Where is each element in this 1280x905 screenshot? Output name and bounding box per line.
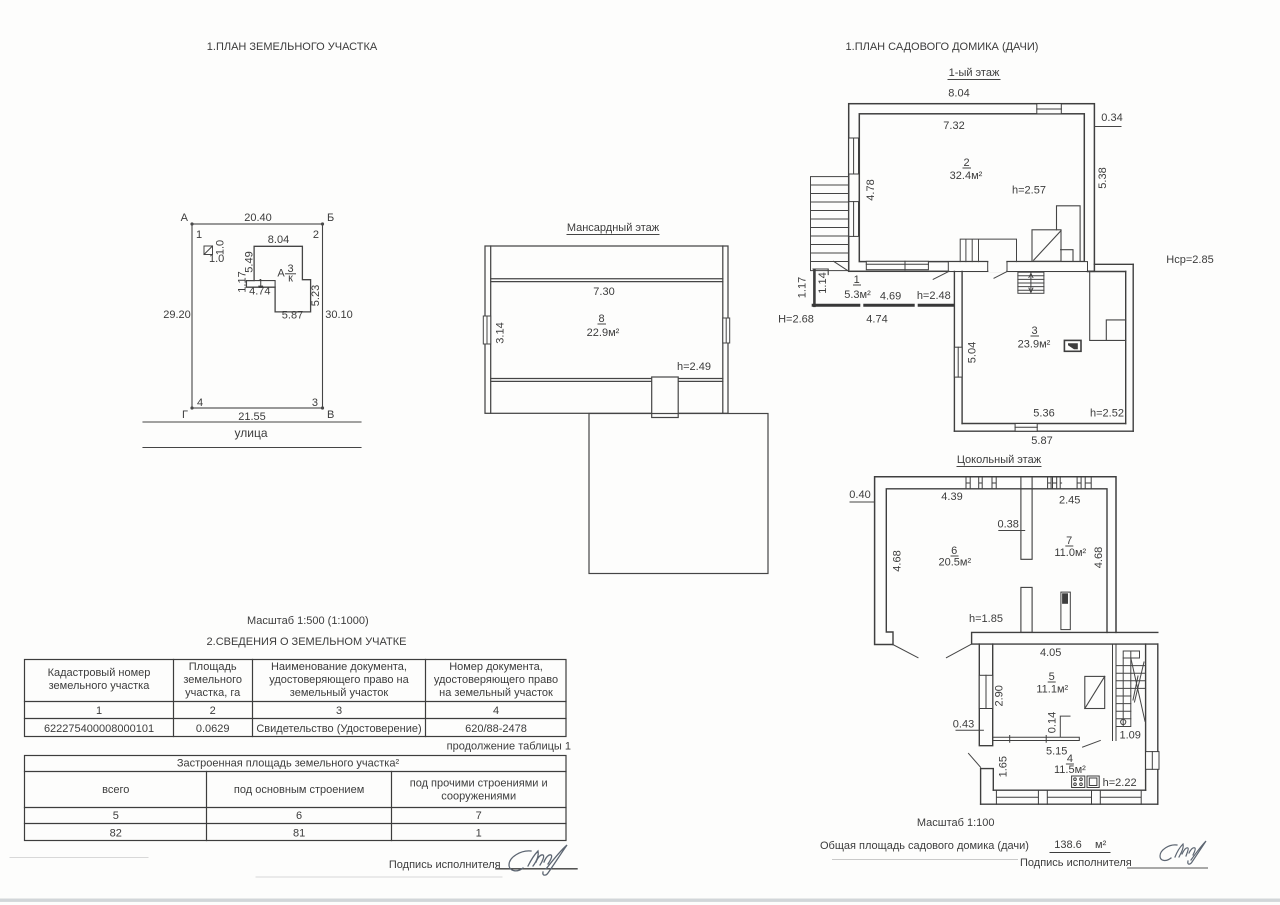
svg-text:81: 81 [293,828,305,840]
svg-text:8: 8 [598,313,604,325]
svg-text:2: 2 [313,229,319,241]
svg-text:Масштаб 1:100: Масштаб 1:100 [917,817,995,829]
svg-text:5: 5 [1049,671,1055,683]
svg-text:h=1.85: h=1.85 [969,613,1003,625]
svg-text:7.30: 7.30 [593,286,614,298]
svg-text:3: 3 [1031,325,1037,337]
svg-text:32.4м²: 32.4м² [950,170,983,182]
svg-text:Подпись исполнителя: Подпись исполнителя [1020,857,1132,869]
svg-text:земельного участка: земельного участка [49,680,151,692]
svg-text:Масштаб 1:500 (1:1000): Масштаб 1:500 (1:1000) [247,615,369,627]
svg-text:4: 4 [197,397,203,409]
svg-text:1: 1 [258,278,264,290]
svg-text:11.1м²: 11.1м² [1036,684,1068,696]
svg-text:11.0м²: 11.0м² [1054,547,1086,559]
svg-text:4.74: 4.74 [866,314,887,326]
svg-text:5.36: 5.36 [1033,408,1054,420]
svg-text:3.14: 3.14 [494,322,506,343]
svg-text:138.6: 138.6 [1054,839,1082,851]
svg-text:5.04: 5.04 [966,342,978,363]
svg-text:4.69: 4.69 [880,291,901,303]
svg-text:А: А [277,268,285,280]
svg-text:1-ый этаж: 1-ый этаж [949,67,1000,79]
svg-text:1.17: 1.17 [796,277,808,298]
svg-text:7.32: 7.32 [943,120,964,132]
svg-text:5.87: 5.87 [282,310,303,322]
svg-text:2.90: 2.90 [994,685,1006,706]
svg-text:1: 1 [96,705,102,717]
svg-text:5.49: 5.49 [243,251,255,272]
svg-text:3: 3 [312,397,318,409]
svg-text:Мансардный этаж: Мансардный этаж [567,222,660,234]
svg-text:30.10: 30.10 [325,309,353,321]
svg-text:5.38: 5.38 [1097,167,1109,188]
svg-text:на земельный участок: на земельный участок [439,687,553,699]
svg-text:23.9м²: 23.9м² [1018,339,1051,351]
svg-text:21.55: 21.55 [238,411,266,423]
svg-text:8.04: 8.04 [268,234,289,246]
svg-text:0.34: 0.34 [1101,112,1122,124]
svg-text:В: В [327,409,334,421]
svg-text:удостоверяющего право на: удостоверяющего право на [269,674,409,686]
svg-text:м²: м² [1095,839,1107,851]
svg-text:1.0: 1.0 [214,240,226,255]
svg-text:0.43: 0.43 [953,719,974,731]
svg-text:2: 2 [210,705,216,717]
svg-text:Б: Б [327,212,334,224]
svg-text:4.05: 4.05 [1040,647,1061,659]
svg-text:h=2.52: h=2.52 [1090,408,1124,420]
svg-text:622275400008000101: 622275400008000101 [44,723,154,735]
svg-text:2: 2 [963,157,969,169]
svg-text:Застроенная площадь земельного: Застроенная площадь земельного участка² [177,758,400,770]
svg-text:Цокольный этаж: Цокольный этаж [957,454,1042,466]
svg-text:4.78: 4.78 [865,179,877,200]
svg-text:2.СВЕДЕНИЯ О ЗЕМЕЛЬНОМ УЧАТКЕ: 2.СВЕДЕНИЯ О ЗЕМЕЛЬНОМ УЧАТКЕ [207,636,407,648]
svg-text:5.3м²: 5.3м² [844,289,871,301]
svg-text:5.15: 5.15 [1046,746,1067,758]
svg-text:Номер документа,: Номер документа, [449,661,543,673]
svg-text:1.17: 1.17 [236,271,248,292]
svg-text:Кадастровый номер: Кадастровый номер [48,667,151,679]
svg-text:11.5м²: 11.5м² [1054,764,1086,776]
svg-text:земельный участок: земельный участок [290,687,389,699]
svg-text:1.14: 1.14 [817,272,829,293]
svg-text:82: 82 [110,828,122,840]
svg-text:h=2.57: h=2.57 [1012,185,1046,197]
svg-text:Общая площадь садового домика: Общая площадь садового домика (дачи) [820,840,1029,852]
svg-text:5.23: 5.23 [310,285,322,306]
svg-text:4.68: 4.68 [1093,547,1105,568]
svg-text:h=2.22: h=2.22 [1103,777,1137,789]
svg-text:29.20: 29.20 [163,309,191,321]
svg-text:4.68: 4.68 [891,550,903,571]
svg-text:6: 6 [296,810,302,822]
svg-text:Н=2.68: Н=2.68 [778,314,814,326]
svg-text:Площадь: Площадь [189,661,237,673]
svg-text:всего: всего [102,784,129,796]
svg-text:улица: улица [235,426,268,440]
svg-text:4.39: 4.39 [941,491,962,503]
svg-text:8.04: 8.04 [948,88,969,100]
svg-text:Свидетельство (Удостоверение): Свидетельство (Удостоверение) [256,723,421,735]
svg-text:1.ПЛАН САДОВОГО ДОМИКА (ДАЧИ): 1.ПЛАН САДОВОГО ДОМИКА (ДАЧИ) [846,41,1039,53]
svg-text:1.65: 1.65 [997,756,1009,777]
svg-text:2.45: 2.45 [1059,495,1080,507]
svg-text:Нср=2.85: Нср=2.85 [1166,254,1213,266]
svg-text:0.0629: 0.0629 [196,723,230,735]
svg-text:1.09: 1.09 [1119,730,1140,742]
svg-text:удостоверяющего право: удостоверяющего право [434,674,558,686]
svg-text:3: 3 [336,705,342,717]
svg-text:Наименование документа,: Наименование документа, [271,661,407,673]
svg-text:7: 7 [1066,535,1072,547]
svg-text:участка, га: участка, га [185,687,241,699]
svg-text:1: 1 [854,274,860,286]
svg-text:4: 4 [493,705,499,717]
svg-text:земельного: земельного [183,674,242,686]
svg-text:сооружениями: сооружениями [441,791,516,803]
svg-text:Подпись исполнителя: Подпись исполнителя [389,859,501,871]
svg-text:0.40: 0.40 [849,489,870,501]
svg-text:20.5м²: 20.5м² [938,557,971,569]
svg-text:0.38: 0.38 [997,519,1018,531]
svg-text:h=2.48: h=2.48 [917,290,951,302]
svg-text:6: 6 [951,545,957,557]
svg-text:h=2.49: h=2.49 [677,361,711,373]
svg-text:продолжение таблицы 1: продолжение таблицы 1 [447,741,571,753]
svg-text:под прочими строениями и: под прочими строениями и [410,778,548,790]
svg-text:1: 1 [476,828,482,840]
svg-text:7: 7 [476,810,482,822]
svg-text:20.40: 20.40 [244,212,272,224]
svg-text:под основным строением: под основным строением [234,784,364,796]
svg-text:22.9м²: 22.9м² [587,327,620,339]
svg-text:1.ПЛАН ЗЕМЕЛЬНОГО УЧАСТКА: 1.ПЛАН ЗЕМЕЛЬНОГО УЧАСТКА [207,41,378,53]
svg-text:5.87: 5.87 [1031,435,1052,447]
svg-text:0.14: 0.14 [1046,712,1058,733]
svg-text:Г: Г [182,409,188,421]
svg-text:А: А [181,212,189,224]
svg-text:5: 5 [113,810,119,822]
svg-text:1: 1 [196,229,202,241]
svg-text:620/88-2478: 620/88-2478 [465,723,527,735]
